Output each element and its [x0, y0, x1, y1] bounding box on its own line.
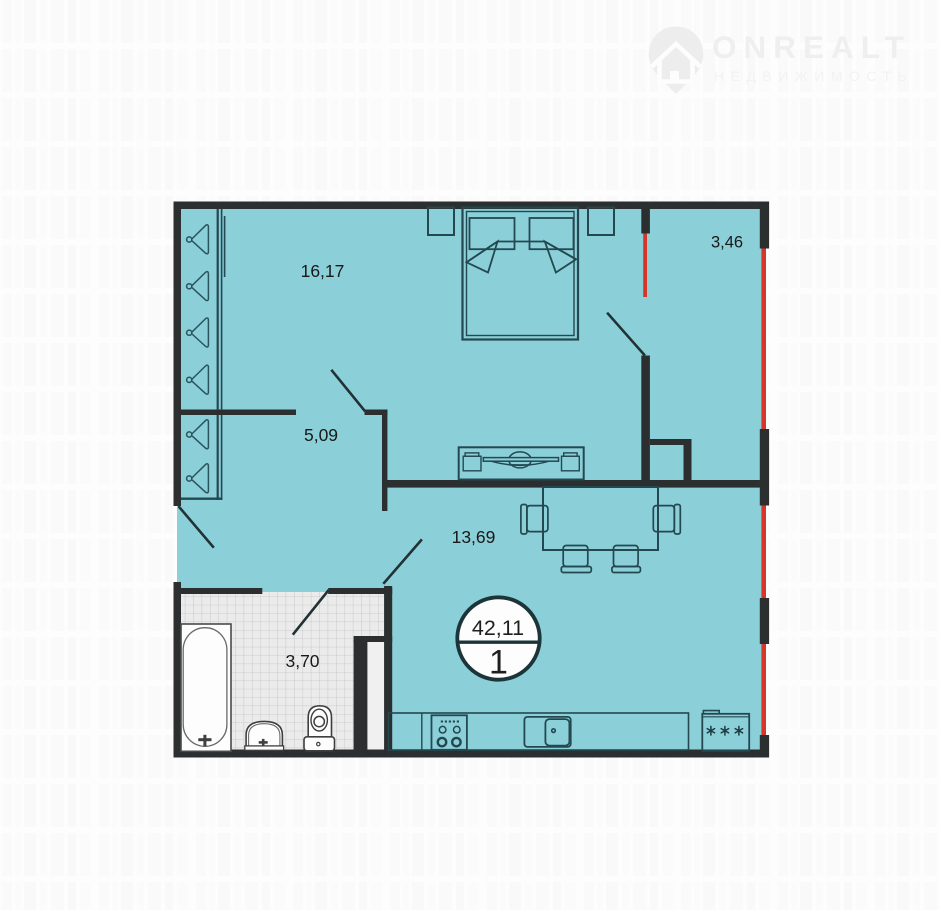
- svg-text:5,09: 5,09: [304, 425, 338, 445]
- svg-text:НЕДВИЖИМОСТЬ: НЕДВИЖИМОСТЬ: [714, 68, 913, 84]
- svg-text:42,11: 42,11: [472, 616, 524, 640]
- svg-text:3,46: 3,46: [711, 234, 743, 252]
- svg-text:3,70: 3,70: [285, 651, 319, 671]
- svg-text:16,17: 16,17: [301, 261, 345, 281]
- svg-text:13,69: 13,69: [452, 527, 496, 547]
- svg-text:ONREALT: ONREALT: [712, 29, 911, 65]
- svg-text:1: 1: [489, 644, 508, 682]
